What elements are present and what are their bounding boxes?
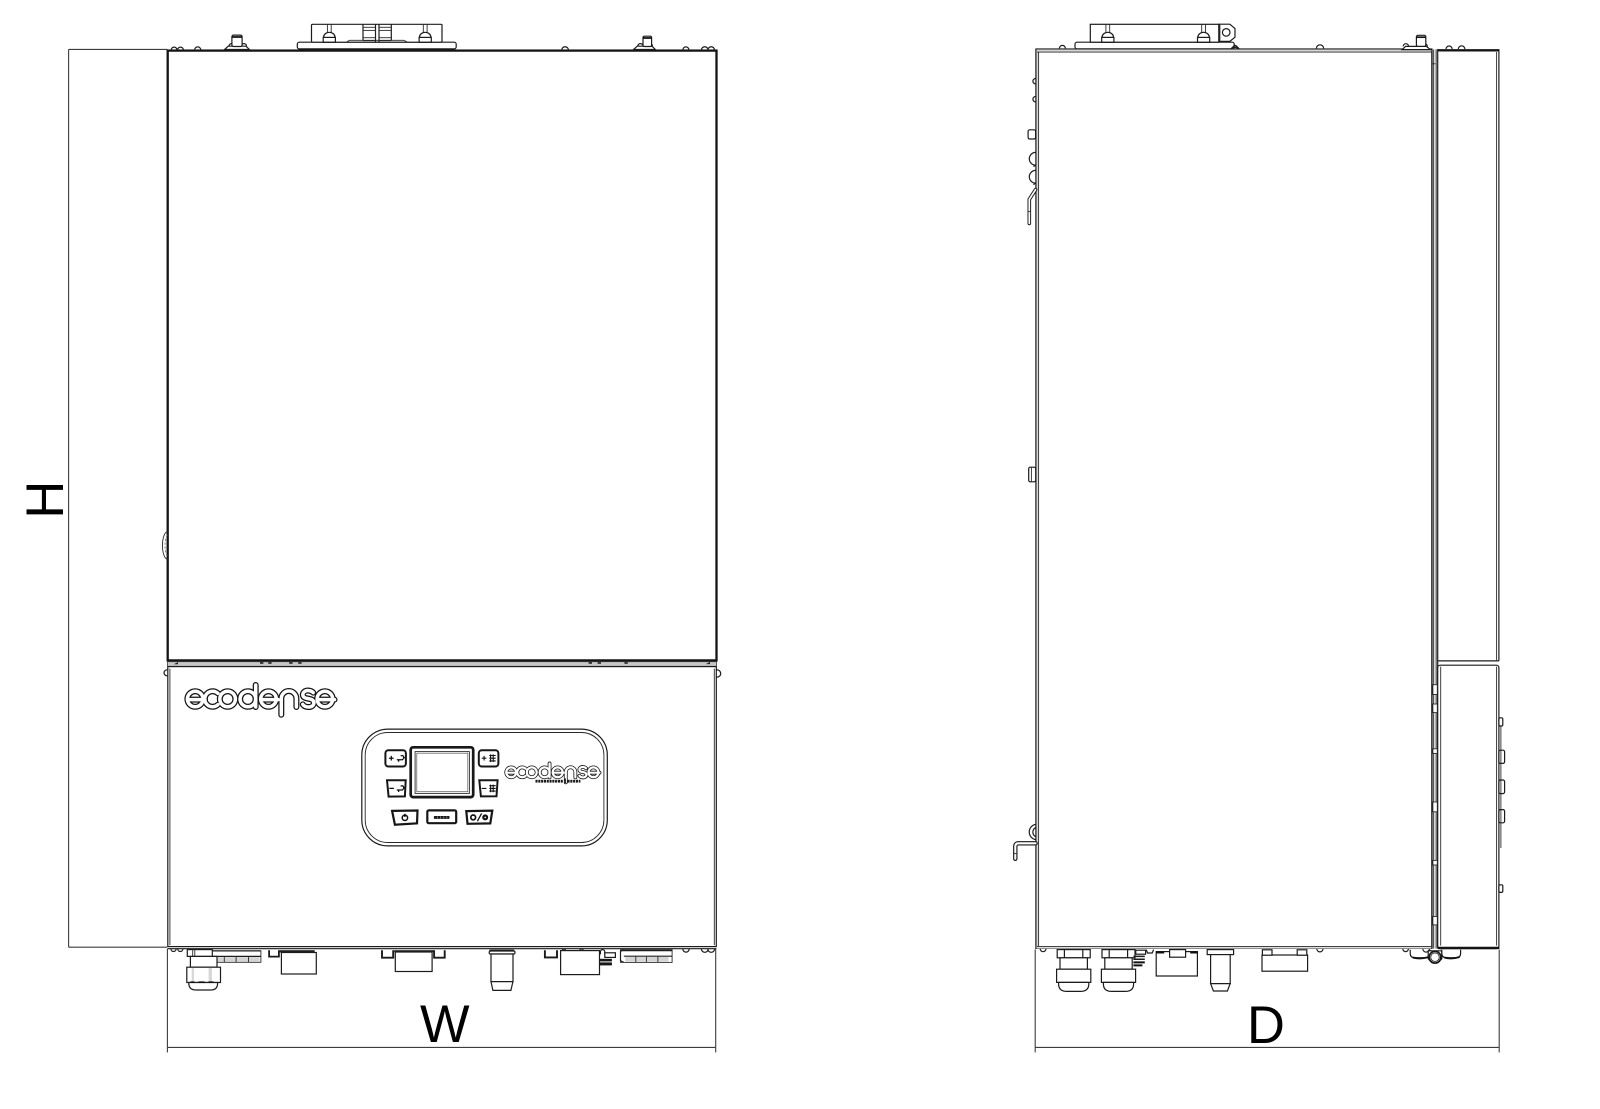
svg-text:D: D (1247, 996, 1285, 1055)
svg-text:H: H (16, 481, 75, 519)
svg-text:W: W (420, 995, 470, 1054)
